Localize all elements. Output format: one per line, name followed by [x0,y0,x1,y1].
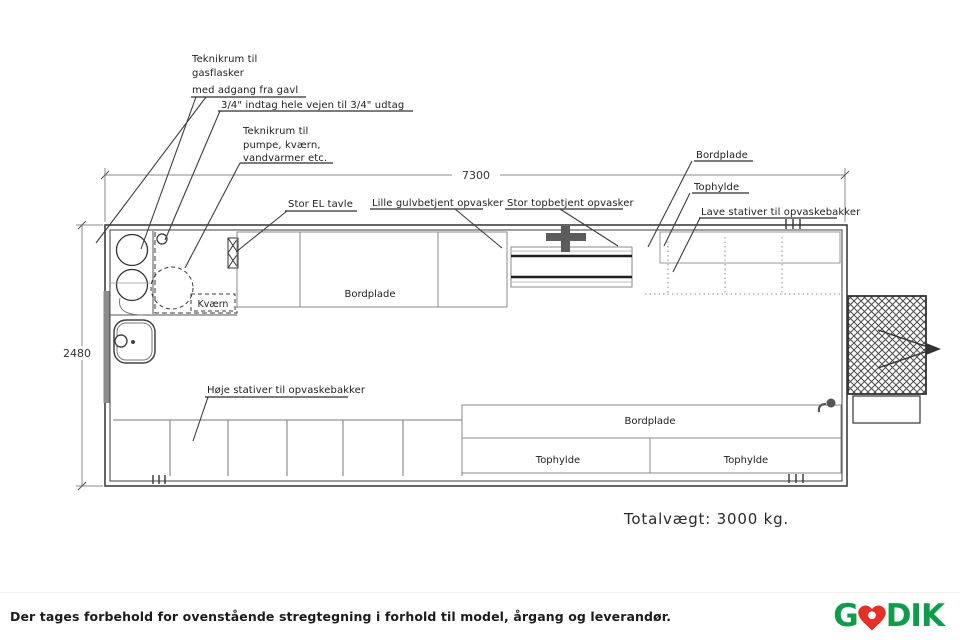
gable-door-band [104,291,110,403]
ramp-step [853,396,920,423]
disclaimer-text: Der tages forbehold for ovenstående stre… [10,609,671,624]
label-large-dishwasher: Stor topbetjent opvasker [507,198,634,209]
godik-logo: G DIK [833,601,944,632]
logo-part-1: G [833,601,857,632]
logo-part-2: DIK [886,601,944,632]
water-heater [151,267,193,309]
label-countertop-bottom: Bordplade [624,416,675,427]
hood-dishwasher [511,247,632,287]
label-tall-racks: Høje stativer til opvaskebakker [207,385,366,396]
label-teknikrum-pumpe-2: pumpe, kværn, [243,140,321,151]
ramp-arrow-icon [926,343,941,355]
trailer-floorplan-page: 7300 2480 Kværn [0,0,960,640]
label-countertop-top: Bordplade [344,289,395,300]
total-weight-note: Totalvægt: 3000 kg. [623,510,789,528]
sink [114,320,155,363]
label-teknikrum-gas-1: Teknikrum til [191,54,257,65]
dimension-length: 7300 [462,169,490,182]
label-top-shelf-bottom-right: Tophylde [723,455,768,466]
dimension-width: 2480 [63,347,91,360]
sink-faucet [115,335,127,347]
top-right-unit [645,232,841,294]
label-teknikrum-pumpe-3: vandvarmer etc. [243,153,327,164]
label-small-dishwasher: Lille gulvbetjent opvasker [372,198,504,209]
ramp [848,296,941,423]
floor-plan-drawing: 7300 2480 Kværn [0,0,960,592]
counter-faucet [819,399,836,413]
leader-lines [96,97,700,441]
label-teknikrum-pumpe-1: Teknikrum til [242,126,308,137]
label-teknikrum-gas-2: gasflasker [192,68,245,79]
label-teknikrum-gas-3: med adgang fra gavl [192,85,298,96]
label-el-board: Stor EL tavle [288,199,353,210]
footer-bar: Der tages forbehold for ovenstående stre… [0,592,960,640]
trailer-walls [105,225,847,486]
tall-racks [113,405,462,476]
gas-bottle-1 [117,235,148,266]
label-pipe-note: 3/4" indtag hele vejen til 3/4" udtag [221,100,404,111]
label-grinder: Kværn [198,299,229,310]
heart-icon [857,604,887,632]
label-top-shelf-bottom-left: Tophylde [535,455,580,466]
wall-vent-ticks [153,219,803,484]
gas-bottle-2 [117,270,148,301]
label-low-racks: Lave stativer til opvaskebakker [701,207,861,218]
label-top-shelf-right: Tophylde [693,182,739,193]
label-countertop-top-right: Bordplade [696,150,748,161]
